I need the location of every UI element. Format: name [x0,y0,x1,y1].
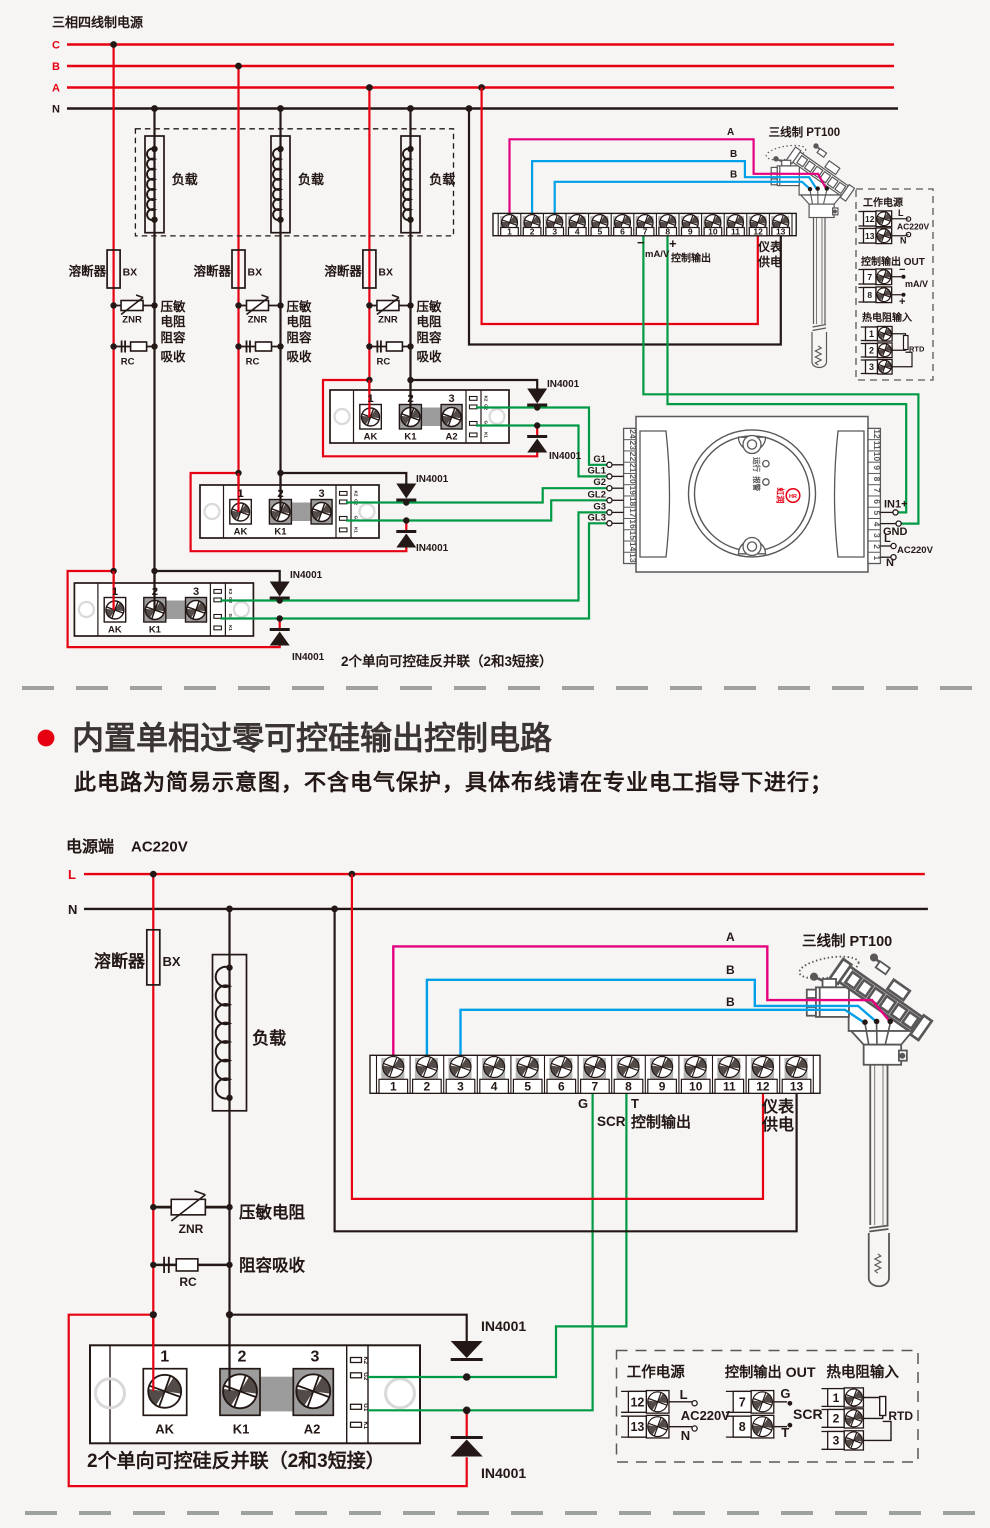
svg-text:3: 3 [552,227,557,237]
svg-text:10: 10 [708,227,718,237]
svg-text:ZNR: ZNR [378,315,398,326]
svg-text:1: 1 [833,1391,840,1405]
svg-text:6: 6 [558,1080,565,1094]
svg-text:吸收: 吸收 [417,349,443,364]
svg-text:AC220V: AC220V [131,839,188,856]
svg-text:4: 4 [575,227,580,237]
svg-text:2: 2 [530,227,535,237]
svg-text:热电阻输入: 热电阻输入 [862,311,912,324]
svg-text:1: 1 [112,586,118,598]
svg-text:RC: RC [246,357,260,368]
svg-text:1: 1 [869,329,874,339]
svg-text:溶断器: 溶断器 [69,264,107,279]
svg-text:7: 7 [739,1395,746,1409]
svg-text:10: 10 [872,452,882,462]
svg-text:G3: G3 [593,501,606,512]
svg-text:G1: G1 [362,1403,368,1412]
svg-text:GL3: GL3 [588,512,606,523]
svg-text:12: 12 [872,429,882,439]
svg-text:22: 22 [628,452,638,462]
svg-text:运行: 运行 [752,457,762,472]
svg-text:−: − [637,235,645,250]
svg-text:N: N [681,1428,690,1443]
svg-text:17: 17 [628,508,638,518]
svg-text:C: C [52,40,60,52]
svg-text:N: N [68,902,77,917]
svg-text:吸收: 吸收 [161,349,187,364]
svg-text:报警: 报警 [752,476,762,491]
svg-text:供电: 供电 [761,1115,794,1134]
svg-text:13: 13 [630,1420,644,1434]
svg-text:B: B [726,963,735,977]
svg-text:仪表: 仪表 [761,1097,795,1116]
svg-text:18: 18 [628,497,638,507]
svg-text:AC220V: AC220V [681,1408,730,1423]
svg-text:L: L [898,208,904,218]
svg-text:6: 6 [620,227,625,237]
svg-text:仪表: 仪表 [757,239,783,254]
svg-text:14: 14 [628,542,638,552]
svg-text:8: 8 [739,1420,746,1434]
svg-text:13: 13 [776,227,786,237]
svg-text:BX: BX [163,954,181,969]
svg-text:20: 20 [628,474,638,484]
svg-text:热电阻输入: 热电阻输入 [826,1363,899,1381]
svg-text:12: 12 [756,1080,770,1094]
svg-text:2: 2 [152,586,158,598]
svg-text:2: 2 [833,1412,840,1426]
svg-text:K1: K1 [404,432,417,443]
svg-text:9: 9 [659,1080,666,1094]
svg-text:RTD: RTD [909,345,925,354]
svg-text:+: + [899,296,905,308]
svg-text:G2: G2 [593,477,606,488]
svg-text:控制输出: 控制输出 [631,1113,691,1131]
svg-text:7: 7 [867,272,872,282]
svg-text:AK: AK [155,1421,174,1436]
svg-text:12: 12 [630,1395,644,1409]
svg-text:B: B [730,149,737,160]
svg-text:BX: BX [248,267,263,279]
svg-text:K2: K2 [362,1356,368,1364]
svg-text:溶断器: 溶断器 [193,264,231,279]
svg-text:AK: AK [108,625,122,636]
svg-text:溶断器: 溶断器 [324,264,362,279]
svg-text:A: A [52,83,60,95]
svg-text:GL1: GL1 [588,465,607,476]
svg-text:K1: K1 [233,1421,250,1436]
svg-text:RC: RC [179,1275,197,1289]
svg-text:K2: K2 [484,396,489,402]
svg-text:压敏: 压敏 [287,299,313,314]
svg-text:1: 1 [507,227,512,237]
svg-text:负载: 负载 [172,172,198,187]
svg-text:电阻: 电阻 [161,314,187,329]
svg-text:三线制 PT100: 三线制 PT100 [769,125,841,139]
svg-text:ZNR: ZNR [248,315,268,326]
svg-text:12: 12 [865,214,875,224]
svg-text:L: L [884,533,891,545]
svg-text:3: 3 [869,362,874,372]
svg-text:G1: G1 [593,454,606,465]
svg-text:13: 13 [628,553,638,563]
svg-text:控制输出 OUT: 控制输出 OUT [861,255,925,268]
svg-text:阻容吸收: 阻容吸收 [239,1255,306,1275]
svg-text:负载: 负载 [298,172,324,187]
svg-text:2个单向可控硅反并联（2和3短接）: 2个单向可控硅反并联（2和3短接） [87,1449,385,1472]
svg-text:内置单相过零可控硅输出控制电路: 内置单相过零可控硅输出控制电路 [72,720,553,756]
svg-text:B: B [52,61,60,73]
svg-text:压敏: 压敏 [161,299,187,314]
svg-text:阻容: 阻容 [287,330,313,345]
svg-text:G: G [780,1386,790,1401]
svg-text:9: 9 [872,465,882,470]
svg-text:A2: A2 [304,1421,321,1436]
svg-text:11: 11 [723,1080,736,1094]
svg-text:T: T [781,1425,789,1440]
svg-text:5: 5 [598,227,603,237]
svg-text:1: 1 [390,1080,397,1094]
svg-text:阻容: 阻容 [417,330,443,345]
svg-text:电源端: 电源端 [66,837,114,856]
svg-text:工作电源: 工作电源 [627,1363,685,1381]
svg-text:电阻: 电阻 [287,314,313,329]
svg-text:K1: K1 [228,625,233,631]
svg-text:3: 3 [833,1434,840,1448]
svg-text:15: 15 [628,531,638,541]
svg-text:RC: RC [377,357,391,368]
svg-text:IN4001: IN4001 [416,543,449,554]
svg-text:G2: G2 [362,1372,368,1381]
svg-text:负载: 负载 [429,172,455,187]
svg-text:负载: 负载 [252,1028,286,1048]
svg-text:RTD: RTD [888,1409,913,1423]
svg-text:1: 1 [872,555,882,560]
svg-text:7: 7 [872,488,882,493]
svg-text:B: B [726,995,735,1009]
svg-text:供电: 供电 [757,254,782,269]
svg-text:2: 2 [407,393,413,405]
svg-text:K2: K2 [354,491,359,497]
svg-text:控制输出 OUT: 控制输出 OUT [725,1364,816,1381]
svg-text:23: 23 [628,441,638,451]
svg-text:K1: K1 [484,432,489,438]
svg-text:2: 2 [872,544,882,549]
svg-text:8: 8 [872,477,882,482]
svg-text:压敏电阻: 压敏电阻 [239,1202,306,1222]
svg-text:10: 10 [689,1080,703,1094]
svg-text:21: 21 [628,463,638,473]
svg-text:K1: K1 [354,527,359,533]
svg-text:19: 19 [628,486,638,496]
svg-text:AC220V: AC220V [897,222,929,232]
svg-text:溶断器: 溶断器 [94,951,146,971]
svg-text:吸收: 吸收 [287,349,313,364]
svg-text:2: 2 [424,1080,431,1094]
svg-text:K1: K1 [362,1421,368,1429]
svg-text:AC220V: AC220V [897,545,934,556]
svg-text:2: 2 [238,1348,247,1365]
svg-text:8: 8 [867,290,872,300]
svg-text:1: 1 [367,393,373,405]
svg-text:mA/V: mA/V [905,279,928,289]
svg-text:L: L [68,867,76,882]
svg-text:11: 11 [731,227,740,237]
svg-text:三相四线制电源: 三相四线制电源 [52,15,143,30]
svg-text:IN4001: IN4001 [481,1318,526,1334]
svg-text:13: 13 [865,231,875,241]
svg-text:3: 3 [311,1348,320,1365]
svg-text:SCR: SCR [793,1406,823,1422]
svg-text:阻容: 阻容 [161,330,187,345]
svg-text:7: 7 [592,1080,599,1094]
svg-text:2: 2 [277,488,283,500]
svg-text:12: 12 [753,227,763,237]
svg-text:IN4001: IN4001 [292,652,325,663]
svg-text:BX: BX [378,267,393,279]
svg-text:3: 3 [193,586,199,598]
svg-text:6: 6 [872,499,882,504]
svg-text:1: 1 [160,1348,169,1365]
svg-text:3: 3 [449,393,455,405]
svg-text:ZNR: ZNR [179,1222,204,1236]
svg-text:ZNR: ZNR [122,315,142,326]
svg-text:9: 9 [688,227,693,237]
svg-text:压敏: 压敏 [417,299,443,314]
svg-text:13: 13 [790,1080,804,1094]
svg-text:1: 1 [237,488,243,500]
svg-text:−: − [899,264,905,276]
svg-text:mA/V: mA/V [645,249,670,260]
svg-text:K2: K2 [228,589,233,595]
svg-text:K1: K1 [274,527,287,538]
svg-text:N: N [52,104,60,116]
svg-text:5: 5 [524,1080,531,1094]
svg-text:3: 3 [457,1080,464,1094]
svg-text:三线制 PT100: 三线制 PT100 [802,932,892,950]
svg-text:2: 2 [869,345,874,355]
svg-text:IN1+: IN1+ [884,499,908,511]
svg-text:BX: BX [123,267,138,279]
svg-text:GL2: GL2 [588,489,606,500]
svg-text:16: 16 [628,519,638,529]
svg-text:RC: RC [121,357,135,368]
svg-text:8: 8 [625,1080,632,1094]
svg-text:N: N [900,236,907,246]
svg-text:AK: AK [234,527,248,538]
svg-text:控制输出: 控制输出 [671,252,711,265]
svg-text:A: A [726,930,735,944]
svg-text:电阻: 电阻 [417,314,443,329]
svg-text:3: 3 [872,533,882,538]
svg-text:IN4001: IN4001 [547,379,580,390]
svg-text:2个单向可控硅反并联（2和3短接）: 2个单向可控硅反并联（2和3短接） [341,653,553,669]
svg-text:24: 24 [628,429,638,439]
svg-text:虹润: 虹润 [776,488,786,504]
svg-text:HR: HR [789,494,797,500]
svg-text:工作电源: 工作电源 [863,196,903,209]
svg-text:+: + [669,236,677,251]
svg-text:IN4001: IN4001 [290,570,323,581]
svg-text:T: T [631,1096,639,1111]
svg-text:A2: A2 [446,432,458,443]
svg-text:A: A [727,127,734,138]
svg-text:K1: K1 [149,625,162,636]
svg-text:L: L [680,1387,688,1402]
svg-text:G: G [578,1096,588,1111]
svg-text:IN4001: IN4001 [481,1465,526,1481]
svg-text:N: N [886,557,894,569]
svg-text:4: 4 [491,1080,498,1094]
svg-text:SCR: SCR [597,1114,626,1129]
svg-text:3: 3 [319,488,325,500]
svg-text:B: B [730,170,737,181]
svg-text:IN4001: IN4001 [549,451,582,462]
svg-text:IN4001: IN4001 [416,474,449,485]
svg-text:AK: AK [364,432,378,443]
svg-text:11: 11 [872,441,882,450]
svg-text:此电路为简易示意图，不含电气保护，具体布线请在专业电工指导下: 此电路为简易示意图，不含电气保护，具体布线请在专业电工指导下进行； [74,770,833,795]
